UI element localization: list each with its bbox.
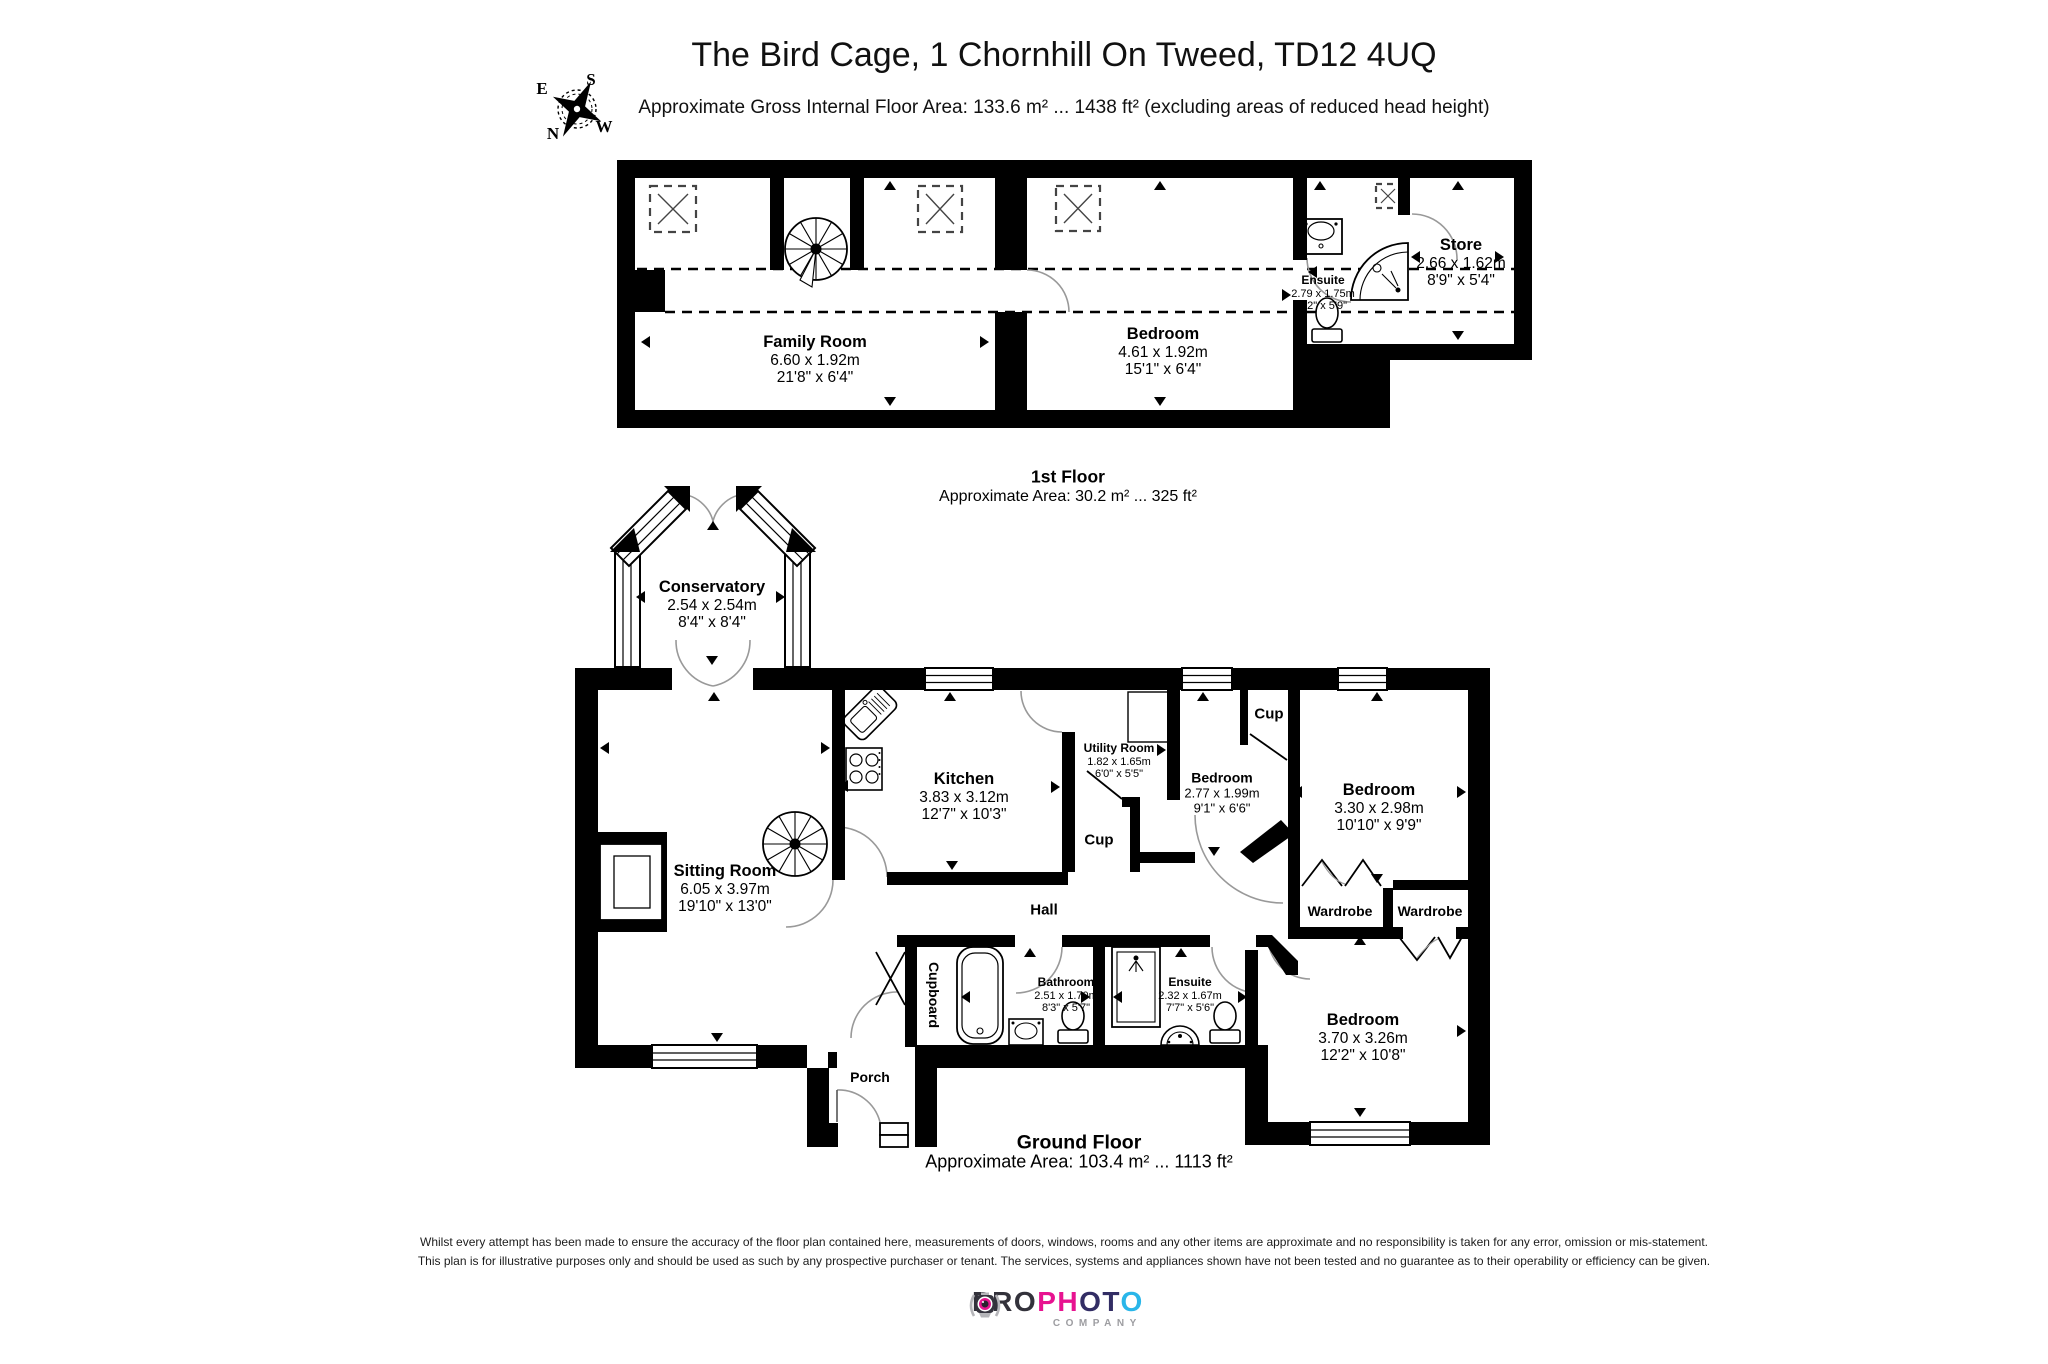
disclaimer: Whilst every attempt has been made to en… xyxy=(0,1233,2048,1271)
room-label-ensuite-ff: Ensuite 2.79 x 1.75m 9'2" x 5'9" xyxy=(1291,274,1355,312)
floorplan-page: The Bird Cage, 1 Chornhill On Tweed, TD1… xyxy=(0,0,2048,1364)
hob-icon xyxy=(846,748,882,790)
room-label-bedroom-ff: Bedroom 4.61 x 1.92m 15'1" x 6'4" xyxy=(1118,325,1208,379)
room-label-bedroom-bottom: Bedroom 3.70 x 3.26m 12'2" x 10'8" xyxy=(1318,1011,1408,1065)
bathroom-sink-icon xyxy=(1009,1019,1043,1045)
ground-floor-area: Approximate Area: 103.4 m² ... 1113 ft² xyxy=(925,1152,1233,1173)
cup-label-kitchen: Cup xyxy=(1084,832,1113,849)
cupboard-label: Cupboard xyxy=(926,962,942,1028)
first-floor-caption: 1st Floor xyxy=(1031,467,1105,488)
wardrobe-label-right: Wardrobe xyxy=(1398,903,1463,919)
shower-icon xyxy=(1351,243,1408,300)
cupboard-door-x xyxy=(876,952,905,1005)
cup-label-bedroom: Cup xyxy=(1254,706,1283,723)
utility-recess xyxy=(1128,692,1168,742)
first-floor-plan xyxy=(617,160,1532,428)
room-label-bathroom: Bathroom 2.51 x 1.70m 8'3" x 5'7" xyxy=(1034,976,1098,1014)
hall-label: Hall xyxy=(1030,902,1058,919)
room-label-store: Store 2.66 x 1.62m 8'9" x 5'4" xyxy=(1416,236,1506,290)
steps-icon xyxy=(880,1123,908,1147)
shower-icon-ensuite xyxy=(1112,947,1160,1027)
room-label-family-room: Family Room 6.60 x 1.92m 21'8" x 6'4" xyxy=(763,333,867,387)
kitchen-sink-icon xyxy=(841,684,899,742)
room-label-kitchen: Kitchen 3.83 x 3.12m 12'7" x 10'3" xyxy=(919,770,1009,824)
room-label-bedroom-small: Bedroom 2.77 x 1.99m 9'1" x 6'6" xyxy=(1184,770,1259,815)
disclaimer-line-2: This plan is for illustrative purposes o… xyxy=(80,1252,2048,1271)
room-label-conservatory: Conservatory 2.54 x 2.54m 8'4" x 8'4" xyxy=(659,578,765,632)
wardrobe-label-left: Wardrobe xyxy=(1308,903,1373,919)
compass-south-label: S xyxy=(586,70,595,90)
cup-door-line xyxy=(1250,734,1287,760)
compass-north-label: N xyxy=(547,124,559,144)
first-floor-area: Approximate Area: 30.2 m² ... 325 ft² xyxy=(939,488,1197,506)
room-label-ensuite-gf: Ensuite 2.32 x 1.67m 7'7" x 5'6" xyxy=(1158,976,1222,1014)
page-subtitle: Approximate Gross Internal Floor Area: 1… xyxy=(0,97,2048,119)
room-label-sitting-room: Sitting Room 6.05 x 3.97m 19'10" x 13'0" xyxy=(674,862,777,916)
room-label-bedroom-right: Bedroom 3.30 x 2.98m 10'10" x 9'9" xyxy=(1334,781,1424,835)
spiral-staircase-icon xyxy=(785,218,847,287)
page-title: The Bird Cage, 1 Chornhill On Tweed, TD1… xyxy=(0,36,2048,75)
disclaimer-line-1: Whilst every attempt has been made to en… xyxy=(80,1233,2048,1252)
porch-label: Porch xyxy=(850,1069,890,1085)
ensuite-sink-icon xyxy=(1161,1026,1199,1045)
room-label-utility-room: Utility Room 1.82 x 1.65m 6'0" x 5'5" xyxy=(1084,742,1155,780)
prophoto-logo: PROPHOTO COMPANY xyxy=(966,1288,1144,1329)
compass-west-label: W xyxy=(596,117,613,137)
fireplace-icon xyxy=(600,844,662,920)
camera-icon xyxy=(966,1288,1004,1324)
compass-east-label: E xyxy=(536,79,547,99)
conservatory-windows xyxy=(610,486,816,667)
